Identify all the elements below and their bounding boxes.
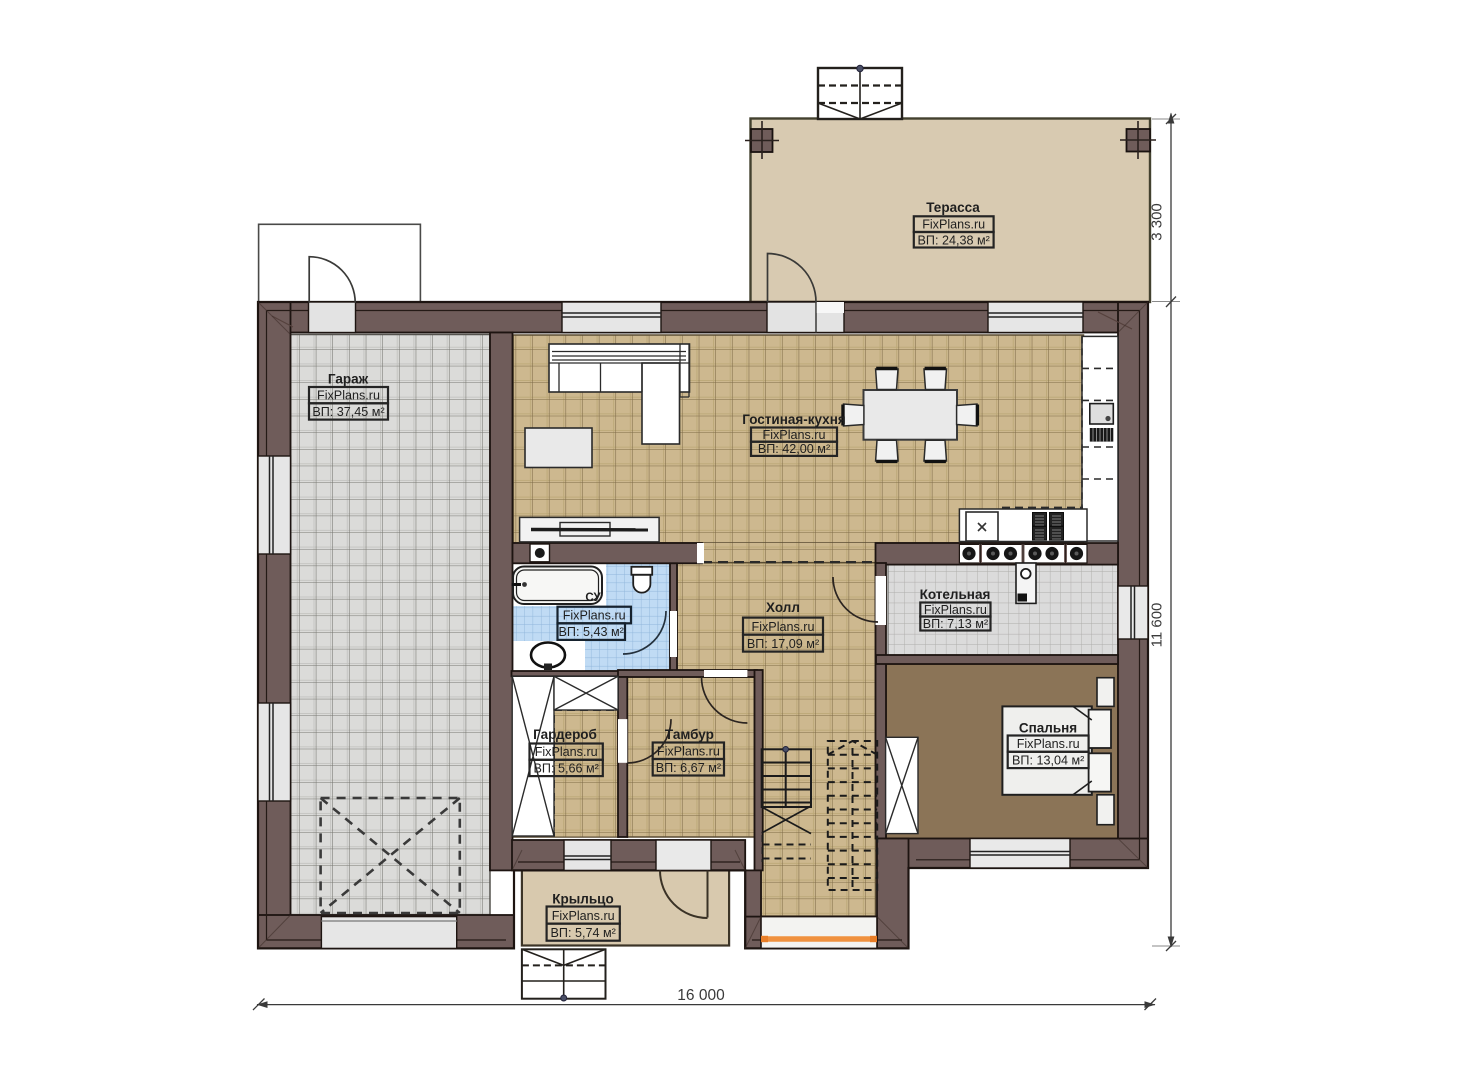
svg-text:ВП: 5,74 м²: ВП: 5,74 м² <box>551 926 616 940</box>
svg-text:Терасса: Терасса <box>926 200 980 215</box>
svg-text:Тамбур: Тамбур <box>665 727 714 742</box>
svg-text:FixPlans.ru: FixPlans.ru <box>1017 737 1080 751</box>
svg-text:ВП: 24,38 м²: ВП: 24,38 м² <box>918 233 990 247</box>
svg-text:Гостиная-кухня: Гостиная-кухня <box>742 412 845 427</box>
svg-text:Крыльцо: Крыльцо <box>552 892 613 907</box>
svg-text:FixPlans.ru: FixPlans.ru <box>563 609 626 623</box>
svg-text:ВП: 5,66 м²: ВП: 5,66 м² <box>534 762 599 776</box>
svg-text:СУ: СУ <box>585 592 601 604</box>
svg-text:3 300: 3 300 <box>1149 203 1166 241</box>
svg-text:FixPlans.ru: FixPlans.ru <box>752 620 815 634</box>
svg-text:Гардероб: Гардероб <box>533 727 597 742</box>
svg-text:Спальня: Спальня <box>1019 721 1077 736</box>
svg-text:FixPlans.ru: FixPlans.ru <box>922 218 985 232</box>
svg-text:Котельная: Котельная <box>920 587 991 602</box>
svg-text:16 000: 16 000 <box>677 987 725 1004</box>
svg-text:ВП: 6,67 м²: ВП: 6,67 м² <box>656 761 721 775</box>
svg-text:ВП: 42,00 м²: ВП: 42,00 м² <box>758 442 830 456</box>
svg-text:FixPlans.ru: FixPlans.ru <box>552 909 615 923</box>
svg-text:ВП: 7,13 м²: ВП: 7,13 м² <box>923 617 988 631</box>
svg-text:FixPlans.ru: FixPlans.ru <box>763 428 826 442</box>
svg-text:Гараж: Гараж <box>328 372 369 387</box>
svg-text:ВП: 5,43 м²: ВП: 5,43 м² <box>559 625 624 639</box>
svg-text:FixPlans.ru: FixPlans.ru <box>657 744 720 758</box>
svg-text:FixPlans.ru: FixPlans.ru <box>317 389 380 403</box>
svg-text:FixPlans.ru: FixPlans.ru <box>924 603 987 617</box>
svg-text:11 600: 11 600 <box>1149 603 1166 648</box>
svg-text:ВП: 17,09 м²: ВП: 17,09 м² <box>747 637 819 651</box>
svg-text:Холл: Холл <box>766 600 800 615</box>
svg-text:FixPlans.ru: FixPlans.ru <box>535 745 598 759</box>
svg-text:ВП: 37,45 м²: ВП: 37,45 м² <box>312 405 384 419</box>
svg-text:ВП: 13,04 м²: ВП: 13,04 м² <box>1012 754 1084 768</box>
